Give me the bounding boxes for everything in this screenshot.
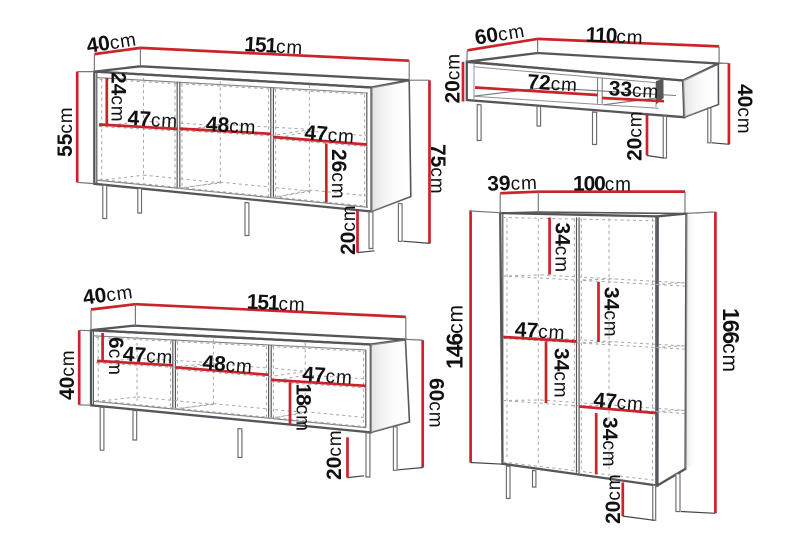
- svg-text:75cm: 75cm: [426, 144, 449, 195]
- svg-text:33cm: 33cm: [608, 77, 660, 103]
- svg-text:20cm: 20cm: [442, 53, 465, 104]
- svg-text:47cm: 47cm: [122, 343, 174, 369]
- svg-text:40cm: 40cm: [733, 84, 756, 135]
- svg-text:47cm: 47cm: [514, 318, 566, 344]
- svg-text:100cm: 100cm: [573, 172, 632, 195]
- svg-text:18cm: 18cm: [292, 384, 315, 432]
- svg-text:34cm: 34cm: [551, 223, 574, 274]
- svg-text:55cm: 55cm: [54, 107, 77, 158]
- svg-text:40cm: 40cm: [56, 350, 79, 401]
- svg-text:151cm: 151cm: [244, 33, 304, 59]
- svg-text:34cm: 34cm: [598, 417, 621, 468]
- svg-text:39cm: 39cm: [487, 171, 538, 196]
- svg-text:20cm: 20cm: [337, 205, 360, 256]
- svg-text:34cm: 34cm: [550, 348, 573, 399]
- svg-text:110cm: 110cm: [585, 24, 644, 49]
- svg-text:20cm: 20cm: [624, 111, 647, 162]
- svg-text:166cm: 166cm: [718, 308, 744, 373]
- svg-text:48cm: 48cm: [205, 113, 257, 139]
- svg-text:34cm: 34cm: [600, 287, 623, 338]
- svg-text:26cm: 26cm: [327, 149, 350, 200]
- svg-text:47cm: 47cm: [127, 107, 179, 133]
- svg-text:20cm: 20cm: [323, 430, 346, 481]
- svg-text:24cm: 24cm: [107, 72, 130, 123]
- svg-text:151cm: 151cm: [246, 291, 306, 317]
- svg-text:20cm: 20cm: [602, 474, 625, 525]
- svg-text:72cm: 72cm: [527, 71, 579, 97]
- svg-text:146cm: 146cm: [442, 304, 468, 369]
- svg-text:60cm: 60cm: [425, 378, 448, 429]
